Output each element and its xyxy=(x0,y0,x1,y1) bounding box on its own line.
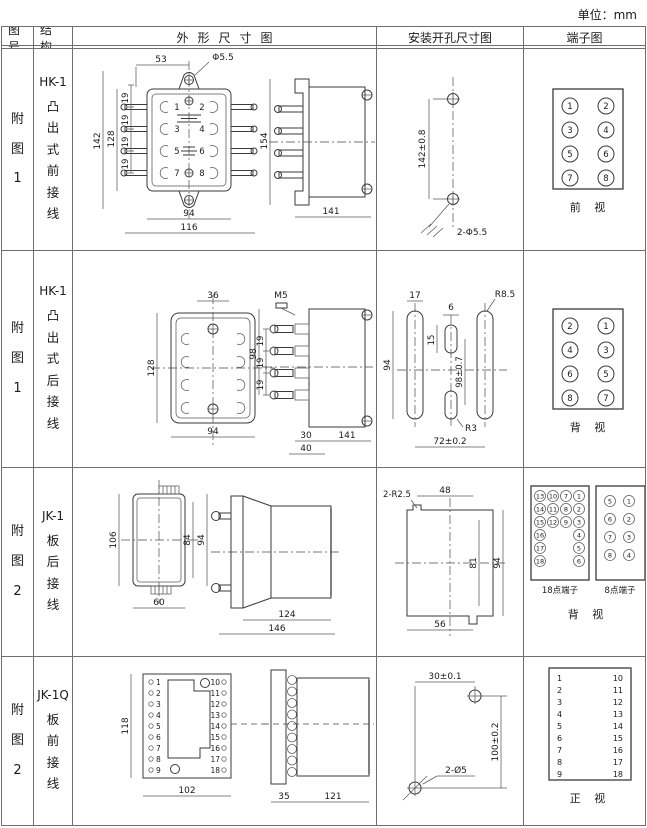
svg-text:3: 3 xyxy=(557,698,562,707)
front-view: 12 34 56 78 9 1011 1213 1415 1617 18 xyxy=(143,674,269,778)
dim-label: 30 xyxy=(300,431,312,441)
dim-label: 53 xyxy=(155,55,166,65)
dim-label: 48 xyxy=(439,486,451,496)
side-view: M5 xyxy=(263,291,373,427)
dim-label: 142 xyxy=(93,132,103,149)
svg-text:13: 13 xyxy=(210,711,220,720)
pin-number: 5 xyxy=(174,147,179,157)
svg-text:4: 4 xyxy=(557,710,562,719)
fig-no-text: 附图1 xyxy=(10,314,26,404)
dim-label: 19 xyxy=(121,159,131,170)
svg-text:7: 7 xyxy=(557,746,562,755)
terminal-number: 2 xyxy=(626,516,630,524)
dim-label: 6 xyxy=(448,303,454,313)
row1-outline-drawing: 1 2 3 4 5 6 7 8 xyxy=(73,49,376,250)
dim-label: 2-Ø5 xyxy=(445,765,467,776)
dim-label: 94 xyxy=(383,359,393,371)
terminal-8pt-label: 8点端子 xyxy=(604,585,635,596)
row2-terminal-drawing: 2 1 4 3 6 5 8 7 背 视 xyxy=(525,251,645,467)
svg-text:14: 14 xyxy=(612,722,622,731)
terminal-number: 7 xyxy=(607,534,611,542)
structure-text: 板前接线 xyxy=(46,709,61,795)
terminal-number: 8 xyxy=(603,174,608,184)
row1-fig-no: 附图1 xyxy=(2,49,34,251)
row3-fig-no: 附图2 xyxy=(2,468,34,657)
spec-table: 图号 结构 外形尺寸图 安装开孔尺寸图 端子图 附图1 HK-1 凸出式前接线 xyxy=(1,26,646,826)
terminal-number: 11 xyxy=(548,506,556,514)
row4-structure: JK-1Q 板前接线 xyxy=(34,657,73,825)
row2-structure: HK-1 凸出式后接线 xyxy=(34,251,73,468)
row3-mounting-drawing: 2-R2.5 48 81 94 56 xyxy=(377,468,523,656)
terminal-number: 17 xyxy=(535,545,543,553)
dim-label: 100±0.2 xyxy=(491,722,501,761)
dim-label: 128 xyxy=(147,359,157,376)
terminal-number: 12 xyxy=(548,519,556,527)
dim-label: 40 xyxy=(300,444,312,454)
terminal-number: 1 xyxy=(567,102,572,112)
dim-label: 30±0.1 xyxy=(428,672,461,682)
terminal-number: 4 xyxy=(626,552,630,560)
terminal-number: 1 xyxy=(576,493,580,501)
dim-label: 106 xyxy=(109,531,119,548)
svg-text:4: 4 xyxy=(156,711,161,720)
front-pin-numbers-right: 1011 1213 1415 1617 18 xyxy=(210,678,220,775)
side-view xyxy=(263,670,374,784)
svg-text:15: 15 xyxy=(210,733,220,742)
svg-text:5: 5 xyxy=(156,722,161,731)
structure-text: 凸出式后接线 xyxy=(46,305,61,434)
dim-label: 154 xyxy=(260,132,270,149)
dim-label: 19 xyxy=(121,93,131,104)
terminal-number: 8 xyxy=(563,506,567,514)
dim-label: 2-R2.5 xyxy=(383,490,411,500)
terminal-number: 2 xyxy=(576,506,580,514)
row3-terminal-drawing: 13 14 15 16 17 18 10 11 12 7 8 9 1 2 3 4 xyxy=(525,468,645,656)
terminal-number: 18 xyxy=(535,558,543,566)
svg-text:11: 11 xyxy=(612,686,622,695)
dim-label: 19 xyxy=(121,115,131,126)
structure-text: 凸出式前接线 xyxy=(46,96,61,225)
svg-text:6: 6 xyxy=(557,734,562,743)
fig-no-text: 附图1 xyxy=(10,105,26,195)
dim-label: 17 xyxy=(409,291,420,301)
header-structure: 结构 xyxy=(34,27,73,49)
terminal-8pt: 5 6 7 8 1 2 3 4 xyxy=(604,496,634,561)
dim-label: R3 xyxy=(465,424,477,434)
fig-no-text: 附图2 xyxy=(10,696,26,786)
svg-text:15: 15 xyxy=(612,734,622,743)
row4-terminal-cell: 12 34 56 78 9 1011 1213 1415 1617 18 正 视 xyxy=(524,657,645,825)
dim-label: 124 xyxy=(278,610,295,620)
row1-terminal-drawing: 1 2 3 4 5 6 7 8 前 视 xyxy=(525,49,645,250)
structure-text: 板后接线 xyxy=(46,530,61,616)
dimensions: 17 94 6 15 98±0.7 R8.5 R3 72±0.2 xyxy=(383,290,515,447)
dim-label: 36 xyxy=(207,291,219,301)
terminal-18pt-label: 18点端子 xyxy=(541,585,578,596)
dim-label: 146 xyxy=(268,624,285,634)
row3-outline-drawing: 106 84 94 60 124 146 xyxy=(73,468,376,656)
dimensions: 36 128 94 98 19 19 19 30 141 xyxy=(147,291,371,454)
view-label: 前 视 xyxy=(569,200,610,214)
svg-text:16: 16 xyxy=(210,744,220,753)
svg-text:10: 10 xyxy=(210,678,220,687)
terminal-number: 10 xyxy=(548,493,556,501)
dim-label: 60 xyxy=(153,598,165,608)
row3-mounting-cell: 2-R2.5 48 81 94 56 xyxy=(377,468,524,657)
svg-text:8: 8 xyxy=(557,758,562,767)
svg-text:10: 10 xyxy=(612,674,622,683)
dim-label: 94 xyxy=(197,534,207,546)
terminal-number: 1 xyxy=(626,498,630,506)
dim-label: 94 xyxy=(207,427,219,437)
header-fig-no: 图号 xyxy=(2,27,34,49)
row1-mounting-cell: 142±0.8 2-Φ5.5 xyxy=(377,49,524,251)
dim-label: 128 xyxy=(107,130,117,147)
row2-fig-no: 附图1 xyxy=(2,251,34,468)
model-label: HK-1 xyxy=(39,75,67,89)
terminal-number: 8 xyxy=(567,394,572,404)
dim-label: 121 xyxy=(324,792,341,802)
row2-outline-drawing: M5 xyxy=(73,251,376,467)
terminal-18pt: 13 14 15 16 17 18 10 11 12 7 8 9 1 2 3 4 xyxy=(534,491,584,567)
svg-text:12: 12 xyxy=(210,700,220,709)
row2-mounting-drawing: 17 94 6 15 98±0.7 R8.5 R3 72±0.2 xyxy=(377,251,523,467)
terminal-number: 5 xyxy=(567,150,572,160)
dim-label: 72±0.2 xyxy=(433,437,466,447)
dimensions: 53 Φ5.5 142 128 19 19 19 19 94 11 xyxy=(93,53,371,233)
view-label: 背 视 xyxy=(567,607,608,621)
pin-number: 4 xyxy=(199,125,204,135)
terminal-number: 6 xyxy=(603,150,608,160)
row1-terminal-cell: 1 2 3 4 5 6 7 8 前 视 xyxy=(524,49,645,251)
svg-text:17: 17 xyxy=(612,758,622,767)
terminal-number: 5 xyxy=(603,370,608,380)
terminal-number: 5 xyxy=(576,545,580,553)
model-label: JK-1Q xyxy=(37,688,69,702)
view-label: 背 视 xyxy=(569,420,610,434)
terminal-number: 7 xyxy=(603,394,608,404)
terminal-number: 1 xyxy=(603,322,608,332)
front-view: 1 2 3 4 5 6 7 8 xyxy=(121,61,257,219)
svg-text:3: 3 xyxy=(156,700,161,709)
row2-terminal-cell: 2 1 4 3 6 5 8 7 背 视 xyxy=(524,251,645,468)
svg-text:5: 5 xyxy=(557,722,562,731)
svg-text:7: 7 xyxy=(156,744,161,753)
row3-structure: JK-1 板后接线 xyxy=(34,468,73,657)
terminal-number: 2 xyxy=(603,102,608,112)
terminal-number: 4 xyxy=(567,346,572,356)
dim-label: 98±0.7 xyxy=(455,356,465,387)
dim-label: M5 xyxy=(274,291,288,301)
terminal-number: 6 xyxy=(607,516,611,524)
terminal-number: 4 xyxy=(603,126,608,136)
model-label: HK-1 xyxy=(39,284,67,298)
pin-number: 2 xyxy=(199,103,204,113)
svg-text:16: 16 xyxy=(612,746,622,755)
row4-outline-cell: 12 34 56 78 9 1011 1213 1415 1617 18 xyxy=(73,657,377,825)
svg-text:1: 1 xyxy=(156,678,161,687)
front-view xyxy=(151,295,275,447)
dim-label: 84 xyxy=(183,534,193,546)
terminal-number: 7 xyxy=(567,174,572,184)
dim-label: 56 xyxy=(434,620,446,630)
dim-label: 141 xyxy=(322,207,339,217)
svg-text:18: 18 xyxy=(210,766,220,775)
terminal-number: 16 xyxy=(535,532,543,540)
pin-number: 7 xyxy=(174,169,179,179)
svg-text:6: 6 xyxy=(156,733,161,742)
dim-label: 19 xyxy=(256,358,266,369)
dim-label: 19 xyxy=(121,137,131,148)
side-view xyxy=(269,79,375,205)
pin-number: 6 xyxy=(199,147,204,157)
dim-label: 116 xyxy=(180,223,197,233)
terminal-number: 5 xyxy=(607,498,611,506)
pin-number: 3 xyxy=(174,125,179,135)
terminal-numbers-left: 12 34 56 78 9 xyxy=(557,674,562,779)
dim-label: 19 xyxy=(256,380,266,391)
terminal-pins-right xyxy=(231,104,257,176)
svg-text:11: 11 xyxy=(210,689,220,698)
terminal-number: 9 xyxy=(563,519,567,527)
terminal-numbers-right: 1011 1213 1415 1617 18 xyxy=(612,674,622,779)
svg-text:12: 12 xyxy=(612,698,622,707)
header-mounting: 安装开孔尺寸图 xyxy=(377,27,524,49)
svg-text:14: 14 xyxy=(210,722,220,731)
row2-mounting-cell: 17 94 6 15 98±0.7 R8.5 R3 72±0.2 xyxy=(377,251,524,468)
row4-terminal-drawing: 12 34 56 78 9 1011 1213 1415 1617 18 正 视 xyxy=(525,658,645,825)
svg-text:9: 9 xyxy=(156,766,161,775)
dim-label: R8.5 xyxy=(495,290,516,300)
unit-label: 单位：mm xyxy=(578,6,637,23)
pin-number: 8 xyxy=(199,169,204,179)
svg-text:2: 2 xyxy=(156,689,161,698)
dim-label: Φ5.5 xyxy=(212,53,233,63)
header-outline: 外形尺寸图 xyxy=(73,27,377,49)
svg-text:8: 8 xyxy=(156,755,161,764)
model-label: JK-1 xyxy=(42,509,64,523)
svg-text:1: 1 xyxy=(557,674,562,683)
row1-outline-cell: 1 2 3 4 5 6 7 8 xyxy=(73,49,377,251)
pin-number: 1 xyxy=(174,103,179,113)
terminal-number: 4 xyxy=(576,532,580,540)
svg-text:18: 18 xyxy=(612,770,622,779)
view-label: 正 视 xyxy=(569,791,610,805)
row1-mounting-drawing: 142±0.8 2-Φ5.5 xyxy=(377,49,523,250)
terminal-number: 3 xyxy=(567,126,572,136)
row3-terminal-cell: 13 14 15 16 17 18 10 11 12 7 8 9 1 2 3 4 xyxy=(524,468,645,657)
svg-text:9: 9 xyxy=(557,770,562,779)
dim-label: 81 xyxy=(469,557,479,568)
terminal-number: 2 xyxy=(567,322,572,332)
dim-label: 118 xyxy=(121,717,131,734)
row4-mounting-cell: 30±0.1 100±0.2 2-Ø5 xyxy=(377,657,524,825)
dim-label: 94 xyxy=(493,557,503,569)
dim-label: 15 xyxy=(427,335,437,346)
terminal-number: 3 xyxy=(576,519,580,527)
svg-text:2: 2 xyxy=(557,686,562,695)
dim-label: 35 xyxy=(278,792,289,802)
dim-label: 141 xyxy=(338,431,355,441)
front-pin-numbers-left: 12 34 56 78 9 xyxy=(156,678,161,775)
side-view xyxy=(211,496,339,608)
terminal-number: 14 xyxy=(535,506,543,514)
row3-outline-cell: 106 84 94 60 124 146 xyxy=(73,468,377,657)
spec-sheet-page: 单位：mm 图号 结构 外形尺寸图 安装开孔尺寸图 端子图 附图1 HK-1 凸… xyxy=(0,0,647,828)
row4-mounting-drawing: 30±0.1 100±0.2 2-Ø5 xyxy=(377,658,523,825)
row2-outline-cell: M5 xyxy=(73,251,377,468)
terminal-number: 13 xyxy=(535,493,543,501)
row1-structure: HK-1 凸出式前接线 xyxy=(34,49,73,251)
dimensions: 106 84 94 60 124 146 xyxy=(109,494,335,634)
terminal-number: 3 xyxy=(603,346,608,356)
dim-label: 19 xyxy=(256,336,266,347)
fig-no-text: 附图2 xyxy=(10,517,26,607)
svg-text:17: 17 xyxy=(210,755,220,764)
dim-label: 94 xyxy=(183,209,195,219)
row4-outline-drawing: 12 34 56 78 9 1011 1213 1415 1617 18 xyxy=(73,658,376,825)
header-terminal: 端子图 xyxy=(524,27,645,49)
dim-label: 102 xyxy=(178,786,195,796)
dim-label: 142±0.8 xyxy=(418,129,428,168)
terminal-number: 7 xyxy=(563,493,567,501)
row4-fig-no: 附图2 xyxy=(2,657,34,825)
svg-text:13: 13 xyxy=(612,710,622,719)
terminal-number: 3 xyxy=(626,534,630,542)
dimensions: 2-R2.5 48 81 94 56 xyxy=(383,486,503,630)
dim-label: 2-Φ5.5 xyxy=(457,228,487,238)
terminal-number: 8 xyxy=(607,552,611,560)
terminal-number: 15 xyxy=(535,519,543,527)
terminal-number: 6 xyxy=(576,558,580,566)
terminal-number: 6 xyxy=(567,370,572,380)
